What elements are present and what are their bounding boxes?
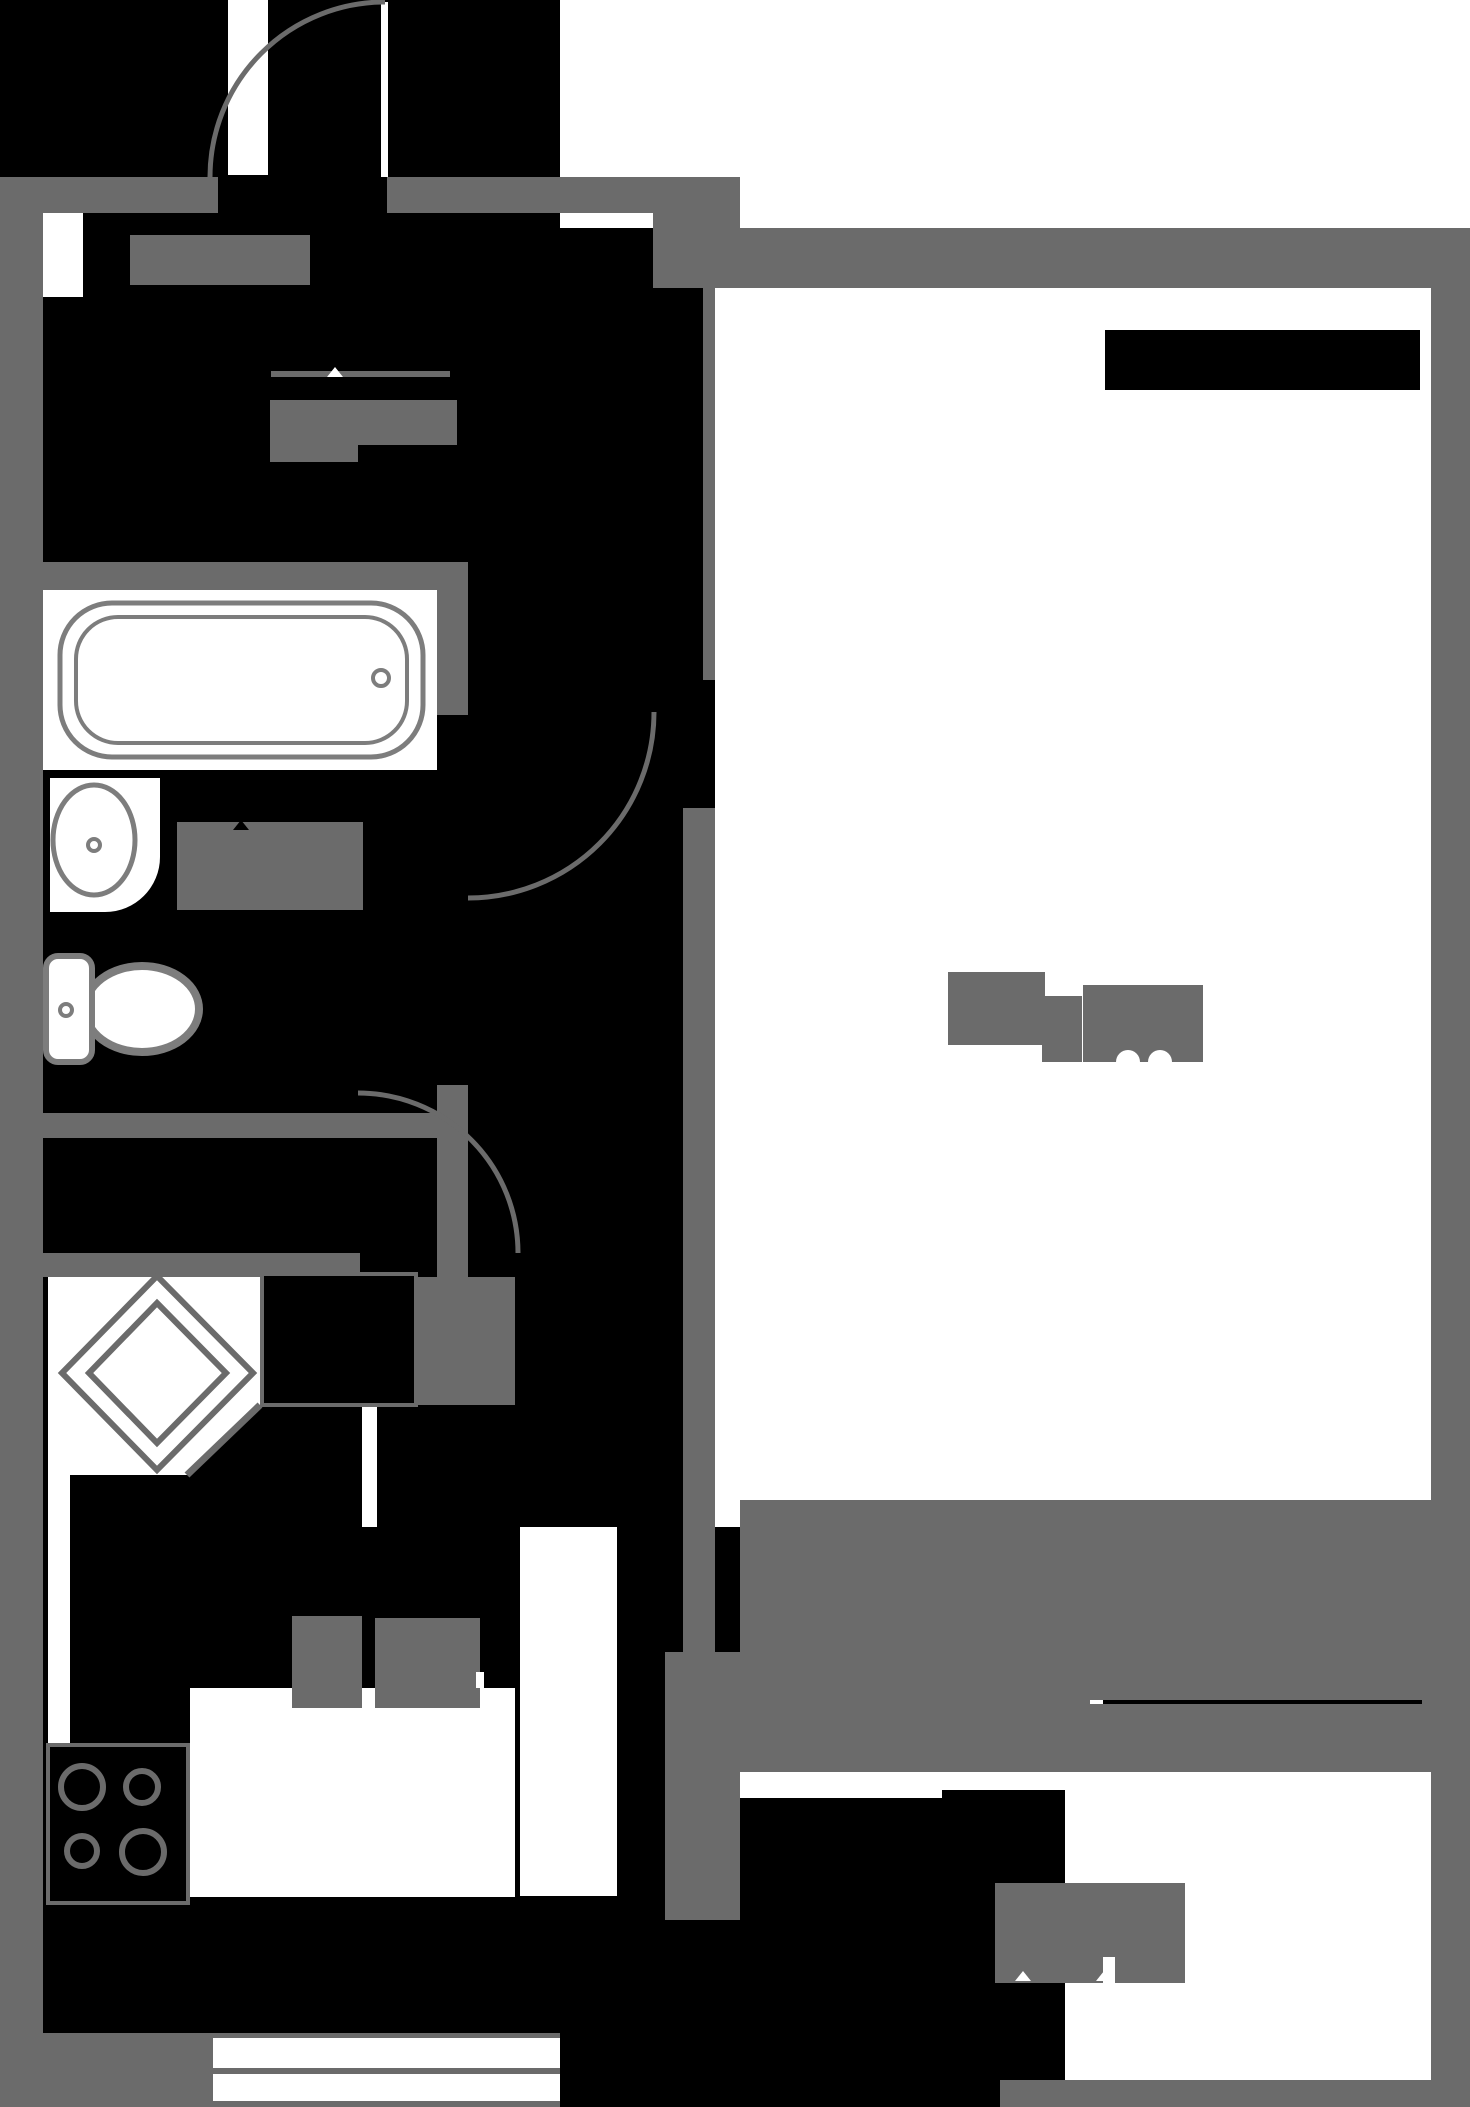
wall-room-left bbox=[683, 808, 715, 1652]
wall-bottom-right bbox=[1000, 2080, 1470, 2107]
hall-area-label-blob-a bbox=[270, 400, 358, 462]
balcony-area-label-blob-c bbox=[1115, 1957, 1185, 1983]
floor-plan bbox=[0, 0, 1470, 2107]
kitchen-bottom-floor bbox=[190, 1688, 515, 1897]
wall-top-step bbox=[653, 177, 740, 288]
wall-balcony-slab bbox=[740, 1500, 1470, 1772]
wall-kitchen-corner-block bbox=[418, 1277, 515, 1405]
balcony-band-notch bbox=[942, 1790, 1065, 1798]
slab-window-line bbox=[1103, 1700, 1422, 1704]
main-room-label-notch-1 bbox=[1116, 1050, 1140, 1074]
main-room-label-notch-2 bbox=[1148, 1050, 1172, 1074]
kitchen-counter-strip bbox=[48, 1475, 70, 1762]
hall-area-label-blob-bar bbox=[271, 371, 450, 377]
kitchen-area-label-blob-a bbox=[292, 1616, 362, 1708]
main-room-area-label-blob-a bbox=[948, 972, 1045, 1045]
balcony-area-label-blob-b bbox=[995, 1957, 1103, 1983]
railing-line-top bbox=[213, 2033, 560, 2038]
bathroom-floor bbox=[43, 590, 437, 770]
balcony-label-notch-1 bbox=[1015, 1971, 1031, 1981]
hall-label-blob bbox=[130, 235, 310, 285]
main-room-floor bbox=[715, 288, 1434, 1500]
kitchen-area-label-blob-b bbox=[375, 1618, 480, 1708]
bathroom-door-arc bbox=[468, 712, 654, 898]
wall-top-middle bbox=[387, 177, 653, 213]
balcony-slit-upper bbox=[715, 1500, 740, 1527]
entrance-opening-slit bbox=[228, 0, 268, 175]
wall-bottom-left-block bbox=[0, 2033, 213, 2107]
bathroom-area-label-notch bbox=[233, 820, 249, 830]
hall-area-label-notch bbox=[327, 367, 343, 377]
wall-toilet-bottom bbox=[43, 1113, 468, 1138]
railing-line-middle bbox=[213, 2068, 560, 2074]
wall-bathroom-top bbox=[0, 562, 468, 590]
kitchen-door-leaf bbox=[362, 1405, 377, 1527]
slab-window-notch bbox=[1090, 1700, 1103, 1704]
toilet bbox=[46, 956, 199, 1062]
kitchen-counter bbox=[260, 1272, 418, 1407]
corridor-bottom-white bbox=[520, 1527, 617, 1896]
entrance-door-leaf bbox=[381, 2, 388, 177]
wall-outer-right bbox=[1431, 228, 1470, 2107]
wall-room-left-upper bbox=[703, 288, 715, 680]
balcony-area-label-blob-a bbox=[995, 1883, 1185, 1957]
main-room-area-label-blob-c bbox=[1083, 985, 1203, 1062]
railing-line-bottom bbox=[213, 2101, 560, 2107]
hallway-notch bbox=[43, 213, 83, 297]
wall-outer-left bbox=[0, 177, 43, 2107]
stove bbox=[46, 1743, 190, 1905]
bathroom-area-label-blob bbox=[177, 822, 363, 910]
kitchen-floor bbox=[48, 1277, 260, 1475]
wall-top-right bbox=[740, 228, 1434, 288]
hall-area-label-blob-b bbox=[358, 400, 457, 445]
kitchen-label-notch bbox=[476, 1672, 484, 1688]
radiator bbox=[1105, 330, 1420, 390]
wall-corridor-bottom bbox=[665, 1652, 740, 1920]
main-room-area-label-blob-b bbox=[1042, 996, 1082, 1062]
wall-bathroom-right-upper bbox=[437, 562, 468, 715]
sink-counter bbox=[50, 778, 160, 912]
balcony-label-notch-2 bbox=[1096, 1971, 1112, 1981]
